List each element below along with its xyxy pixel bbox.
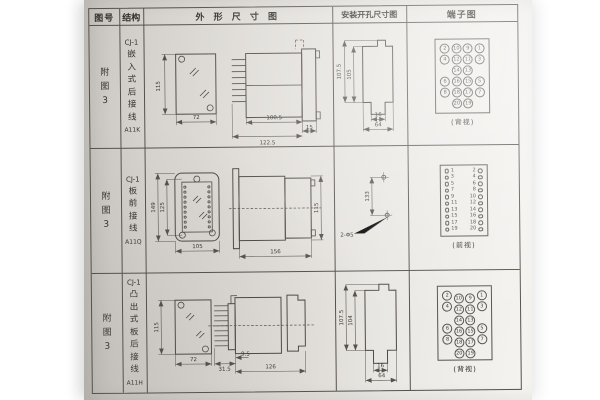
install-drawing-cell: 133 2-Φ5 [333, 145, 408, 271]
install-drawing-cell: 107.5 104 16 64 [335, 270, 410, 391]
terminal-grid: 2109141211314136161558181772019 [437, 285, 492, 361]
terminal-number: 7 [451, 188, 454, 193]
terminal-pair-row: 1920 [445, 226, 483, 232]
terminal-hole [444, 195, 449, 200]
dim-opening-width: 64 [378, 373, 386, 379]
terminal-view-label: (背视) [453, 364, 477, 374]
outline-drawing-cell: 115 72 9.5 31.5 [146, 271, 336, 393]
outline-drawing-cell: 149 125 105 156 [144, 146, 334, 273]
terminal-pair-row: 1718 [445, 220, 483, 226]
terminal-pin: 18 [454, 337, 464, 347]
terminal-pair-row: 1516 [445, 213, 483, 219]
terminal-row: 412113 [442, 301, 487, 311]
photo-of-manual-page: 图号 结构 外 形 尺 寸 图 安装开孔尺寸图 端子图 附图3 CJ-1 嵌入式… [0, 0, 600, 400]
front-view: 149 125 105 [151, 173, 220, 254]
terminal-pin: 17 [466, 337, 476, 347]
terminal-pin: 4 [440, 55, 450, 65]
model-label: CJ-1 [127, 279, 141, 287]
terminal-pin: 6 [440, 77, 450, 87]
outline-drawing-a11h: 115 72 9.5 31.5 [146, 271, 336, 393]
terminal-blank [440, 66, 450, 76]
model-label: CJ-1 [126, 175, 140, 183]
terminal-blank [477, 345, 487, 355]
terminal-pin: 3 [477, 301, 487, 311]
terminal-pair-row: 78 [444, 187, 482, 193]
terminal-number: 16 [470, 214, 476, 219]
terminal-row: 616155 [442, 323, 487, 333]
terminal-pin: 18 [452, 87, 462, 97]
structure-cell: CJ-1 凸出式板后接线 A11H [122, 273, 147, 393]
terminal-blank [475, 98, 485, 108]
terminal-hole [478, 168, 483, 173]
code-label: A11Q [125, 238, 142, 245]
terminal-blank [477, 312, 487, 322]
header-structure: 结构 [119, 9, 143, 25]
terminal-pair-row: 1314 [445, 207, 483, 213]
terminal-pin: 15 [465, 326, 475, 336]
terminal-row: 1413 [442, 312, 487, 322]
terminal-pin: 19 [463, 98, 473, 108]
terminal-number: 19 [451, 227, 457, 232]
terminal-pin: 7 [477, 334, 487, 344]
terminal-pin: 1 [477, 290, 487, 300]
install-drawing-a11q: 133 2-Φ5 [333, 145, 408, 271]
terminal-number: 14 [470, 207, 476, 212]
terminal-pin: 8 [440, 88, 450, 98]
terminal-pin: 17 [463, 87, 473, 97]
terminal-hole [444, 188, 449, 193]
terminal-number: 6 [473, 181, 476, 186]
terminal-number: 11 [451, 201, 457, 206]
terminal-pin: 15 [463, 76, 473, 86]
terminal-pin: 11 [463, 54, 473, 64]
model-label: CJ-1 [125, 39, 139, 47]
terminal-pair-row: 12 [444, 168, 482, 174]
terminal-hole [444, 169, 449, 174]
terminal-number: 10 [470, 194, 476, 199]
dim-flange: 15 [306, 125, 314, 131]
code-label: A11H [127, 379, 143, 386]
terminal-pair-row: 910 [444, 194, 482, 200]
terminal-view-label: (背视) [451, 117, 475, 127]
dim-total-depth: 126 [265, 364, 276, 370]
dim-inner-height: 105 [347, 69, 353, 80]
front-view: 115 72 [154, 300, 212, 367]
terminal-hole [445, 208, 450, 213]
terminal-pin: 6 [442, 323, 452, 333]
terminal-blank [442, 312, 452, 322]
terminal-grid: 1234567891011121314151617181920 [439, 164, 488, 236]
terminal-row: 412113 [440, 54, 485, 64]
terminal-view-label: (前视) [452, 240, 476, 250]
structure-cell: CJ-1 嵌入式后接线 A11K [119, 25, 144, 148]
terminal-hole [478, 175, 483, 180]
terminal-hole [478, 188, 483, 193]
dim-body-depth: 100.5 [266, 115, 282, 121]
terminal-hole [444, 175, 449, 180]
terminal-number: 15 [451, 214, 457, 219]
terminal-number: 12 [470, 201, 476, 206]
figure-no-text: 附图3 [99, 65, 110, 107]
terminal-hole [445, 227, 450, 232]
code-label: A11K [124, 127, 140, 134]
header-terminal: 端子图 [406, 5, 517, 22]
terminal-pin: 20 [454, 348, 464, 358]
figure-no-cell: 附图3 [91, 148, 122, 273]
terminal-pin: 12 [451, 54, 461, 64]
terminal-row: 2019 [443, 345, 488, 355]
dim-depth: 156 [270, 249, 281, 255]
terminal-pin: 2 [442, 290, 452, 300]
dim-front-height: 115 [154, 322, 160, 333]
terminal-number: 17 [451, 220, 457, 225]
terminal-blank [474, 65, 484, 75]
dim-front-height: 115 [156, 81, 162, 92]
terminal-pin: 9 [463, 43, 473, 53]
terminal-hole [445, 214, 450, 219]
structure-cell: CJ-1 板前接线 A11Q [120, 148, 145, 273]
terminal-number: 1 [451, 168, 454, 173]
dim-front-width: 72 [193, 115, 200, 121]
terminal-pin: 14 [451, 65, 461, 75]
terminal-number: 5 [451, 181, 454, 186]
figure-no-cell: 附图3 [89, 25, 120, 148]
drill-holes: 133 2-Φ5 [340, 172, 393, 238]
cutout-profile: 107.5 104 16 64 [339, 284, 397, 383]
terminal-row: 1413 [440, 65, 485, 75]
header-figure-no: 图号 [89, 9, 119, 25]
terminal-row: 21091 [440, 43, 485, 53]
terminal-pin: 13 [463, 65, 473, 75]
terminal-pin: 4 [442, 301, 452, 311]
dim-inner-height: 104 [348, 315, 354, 326]
terminal-row: 2019 [440, 98, 485, 108]
dim-slot-width: 16 [377, 363, 385, 369]
terminal-hole [478, 220, 483, 225]
terminal-number: 18 [470, 220, 476, 225]
dim-pin-depth: 31.5 [218, 367, 231, 373]
side-view: 9.5 31.5 126 [208, 295, 315, 374]
terminal-blank [440, 99, 450, 109]
figure-no-text: 附图3 [102, 312, 113, 354]
terminal-cell: 2109141211314136161558181772019 (背视) [409, 269, 521, 390]
terminal-number: 8 [473, 188, 476, 193]
terminal-row: 21091 [442, 290, 487, 300]
dim-outer-height: 107.5 [339, 309, 345, 325]
mounting-label: 凸出式板后接线 [129, 289, 140, 377]
terminal-pin: 16 [454, 326, 464, 336]
terminal-pin: 11 [465, 304, 475, 314]
terminal-hole [478, 194, 483, 199]
cutout-profile: 107.5 105 16 64 [336, 40, 393, 132]
front-view: 115 72 [156, 54, 217, 126]
terminal-number: 4 [473, 175, 476, 180]
dim-outer-height: 107.5 [337, 63, 343, 79]
terminal-row: 818177 [443, 334, 488, 344]
document-page: 图号 结构 外 形 尺 寸 图 安装开孔尺寸图 端子图 附图3 CJ-1 嵌入式… [84, 0, 532, 400]
side-view: 156 115 [229, 168, 324, 259]
header-outline: 外 形 尺 寸 图 [143, 7, 332, 25]
terminal-pin: 8 [443, 334, 453, 344]
dim-holes-label: 2-Φ5 [340, 233, 354, 239]
terminal-hole [478, 201, 483, 206]
terminal-hole [478, 227, 483, 232]
terminal-pair-row: 34 [444, 174, 482, 180]
dim-offset: 9.5 [241, 352, 250, 358]
side-view: 100.5 15 122.5 [231, 40, 320, 147]
dim-width: 105 [192, 244, 203, 250]
terminal-blank [443, 345, 453, 355]
terminal-hole [478, 207, 483, 212]
terminal-hole [478, 181, 483, 186]
terminal-row: 616155 [440, 76, 485, 86]
dim-hole-spacing: 133 [365, 191, 371, 202]
terminal-row: 818177 [440, 87, 485, 97]
terminal-pin: 5 [475, 76, 485, 86]
install-drawing-a11k: 107.5 105 16 64 [332, 22, 407, 146]
terminal-hole [478, 214, 483, 219]
dim-front-width: 72 [190, 357, 197, 363]
terminal-pin: 9 [465, 293, 475, 303]
terminal-pair-row: 1112 [445, 200, 483, 206]
terminal-number: 20 [470, 227, 476, 232]
terminal-pin: 20 [452, 98, 462, 108]
terminal-pin: 5 [477, 323, 487, 333]
dim-height-outer: 149 [151, 202, 157, 213]
outline-drawing-cell: 115 72 100.5 15 [143, 23, 333, 148]
terminal-cell: 2109141211314136161558181772019 (背视) [406, 21, 518, 145]
terminal-number: 9 [451, 194, 454, 199]
outline-drawing-a11k: 115 72 100.5 15 [143, 23, 333, 148]
install-drawing-cell: 107.5 105 16 64 [332, 22, 407, 146]
dim-opening-width: 64 [375, 122, 383, 128]
terminal-number: 2 [473, 168, 476, 173]
terminal-pin: 2 [440, 44, 450, 54]
figure-no-text: 附图3 [100, 189, 111, 231]
figure-no-cell: 附图3 [92, 273, 123, 393]
terminal-pin: 10 [451, 43, 461, 53]
terminal-hole [444, 182, 449, 187]
outline-drawing-a11q: 149 125 105 156 [144, 146, 334, 273]
terminal-hole [445, 201, 450, 206]
terminal-cell: 1234567891011121314151617181920 (前视) [407, 144, 519, 270]
terminal-pin: 7 [475, 87, 485, 97]
header-install: 安装开孔尺寸图 [332, 6, 406, 23]
terminal-number: 3 [451, 175, 454, 180]
spec-table: 图号 结构 外 形 尺 寸 图 安装开孔尺寸图 端子图 附图3 CJ-1 嵌入式… [88, 4, 522, 394]
terminal-pin: 1 [474, 43, 484, 53]
terminal-pair-row: 56 [444, 181, 482, 187]
terminal-pin: 13 [465, 315, 475, 325]
install-drawing-a11h: 107.5 104 16 64 [335, 270, 410, 391]
dim-height-inner: 125 [160, 202, 166, 213]
mounting-label: 板前接线 [128, 185, 138, 235]
terminal-grid: 2109141211314136161558181772019 [435, 38, 490, 114]
terminal-pin: 12 [454, 304, 464, 314]
terminal-pin: 19 [466, 348, 476, 358]
mounting-label: 嵌入式后接线 [127, 49, 138, 124]
terminal-pin: 14 [454, 315, 464, 325]
terminal-pin: 16 [452, 76, 462, 86]
terminal-pin: 3 [474, 54, 484, 64]
dim-side-height: 115 [314, 202, 320, 213]
terminal-pin: 10 [454, 293, 464, 303]
terminal-number: 13 [451, 207, 457, 212]
dim-slot-width: 16 [375, 112, 383, 118]
terminal-hole [445, 221, 450, 226]
